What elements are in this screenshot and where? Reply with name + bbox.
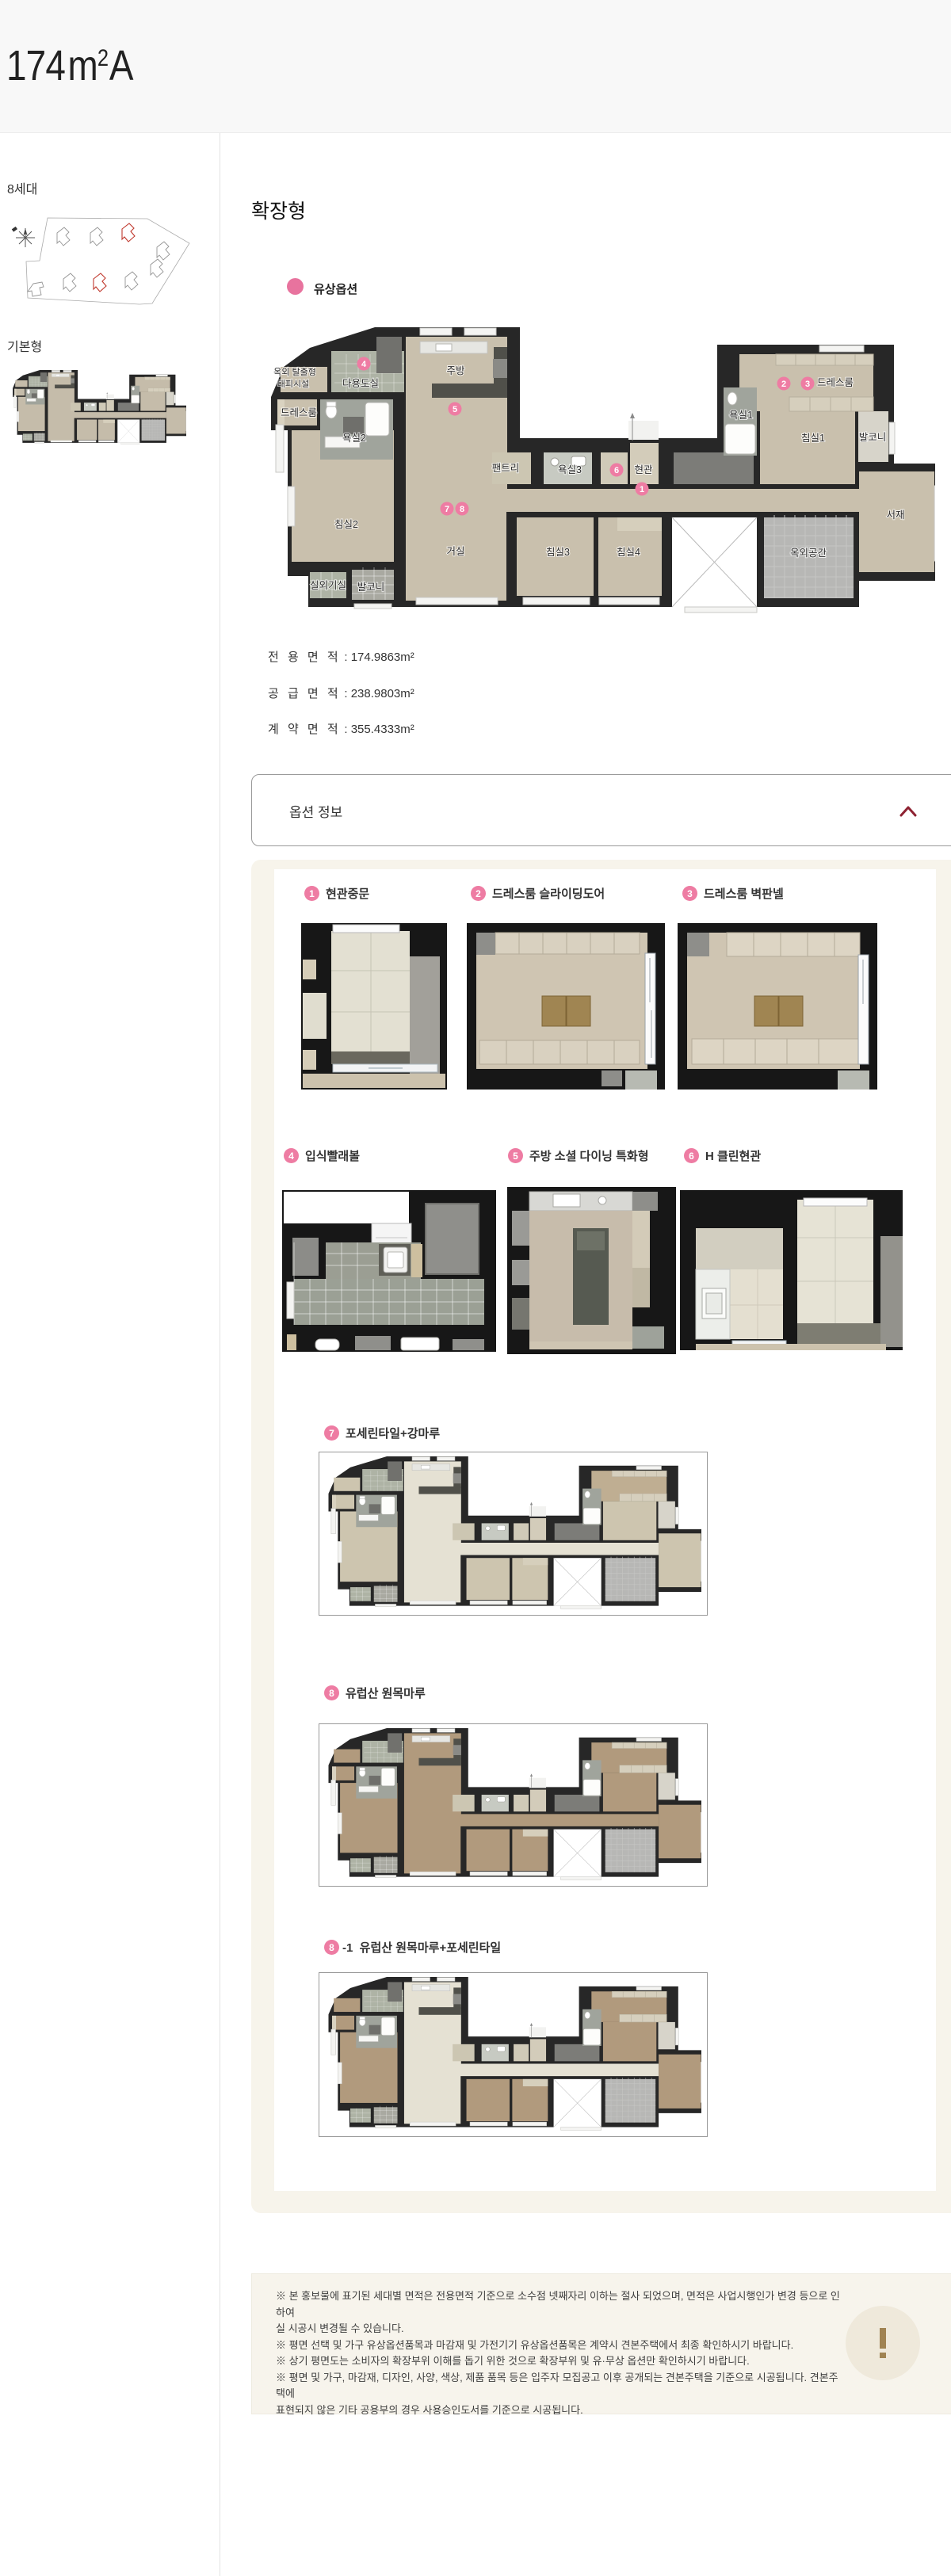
svg-text:현관: 현관 xyxy=(634,464,653,475)
svg-text:다용도실: 다용도실 xyxy=(342,378,379,389)
svg-text:욕실1: 욕실1 xyxy=(729,410,753,421)
svg-text:8: 8 xyxy=(460,505,464,514)
svg-text:발코니: 발코니 xyxy=(357,582,385,593)
svg-text:대피시설: 대피시설 xyxy=(277,379,309,389)
svg-text:침실4: 침실4 xyxy=(617,547,640,558)
svg-text:2: 2 xyxy=(781,380,786,389)
svg-text:침실2: 침실2 xyxy=(334,519,358,530)
svg-text:욕실2: 욕실2 xyxy=(342,433,366,444)
svg-text:발코니: 발코니 xyxy=(859,432,887,443)
svg-text:5: 5 xyxy=(453,405,457,414)
svg-text:드레스룸: 드레스룸 xyxy=(817,377,854,388)
svg-text:실외기실: 실외기실 xyxy=(310,580,346,591)
svg-text:욕실3: 욕실3 xyxy=(558,464,582,475)
svg-text:옥외공간: 옥외공간 xyxy=(790,548,827,559)
svg-text:주방: 주방 xyxy=(446,365,465,376)
svg-text:침실1: 침실1 xyxy=(801,433,825,444)
svg-text:침실3: 침실3 xyxy=(546,547,570,558)
svg-text:거실: 거실 xyxy=(446,546,464,557)
svg-text:드레스룸: 드레스룸 xyxy=(281,407,317,418)
svg-text:3: 3 xyxy=(805,380,810,389)
svg-text:6: 6 xyxy=(614,466,619,475)
svg-text:4: 4 xyxy=(361,360,367,369)
svg-text:옥외 탈출형: 옥외 탈출형 xyxy=(273,367,316,377)
svg-text:팬트리: 팬트리 xyxy=(492,463,520,474)
svg-text:1: 1 xyxy=(640,485,644,494)
svg-text:7: 7 xyxy=(445,505,449,514)
svg-text:서재: 서재 xyxy=(886,509,904,521)
